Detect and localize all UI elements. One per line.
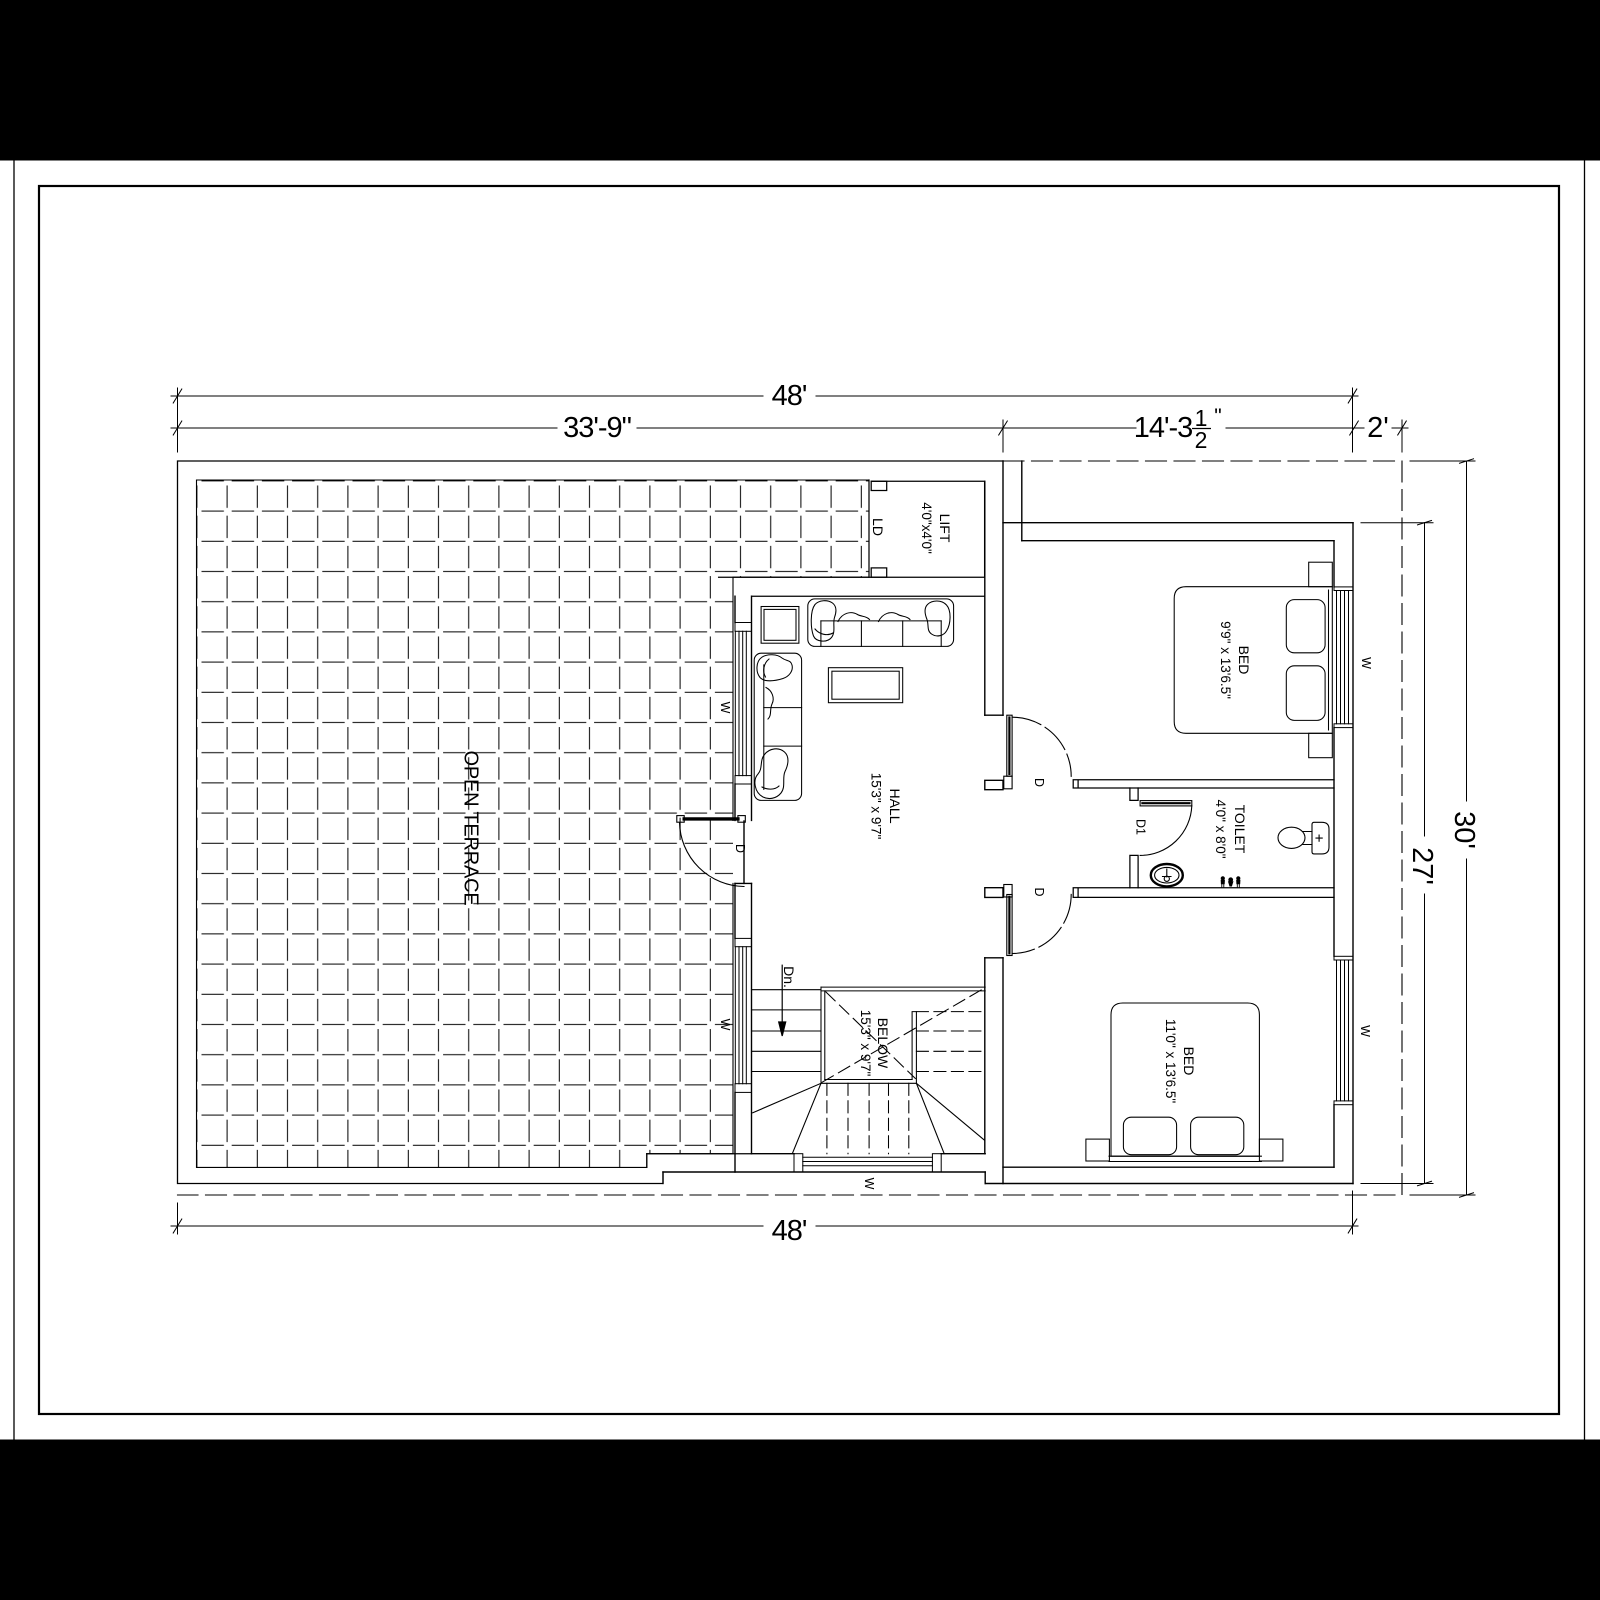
svg-text:OPEN TERRACE: OPEN TERRACE <box>460 750 482 905</box>
svg-text:11'0" x 13'6.5": 11'0" x 13'6.5" <box>1163 1019 1178 1104</box>
svg-text:TOILET: TOILET <box>1232 805 1248 854</box>
svg-text:27': 27' <box>1406 847 1438 885</box>
svg-text:48': 48' <box>772 380 807 412</box>
svg-text:D: D <box>733 844 747 853</box>
svg-text:14'-3: 14'-3 <box>1134 412 1193 444</box>
svg-text:W: W <box>1358 1025 1372 1037</box>
svg-text:48': 48' <box>772 1215 807 1247</box>
svg-text:LIFT: LIFT <box>937 514 953 543</box>
svg-text:W: W <box>718 1019 732 1031</box>
svg-text:15'3" x 9'7": 15'3" x 9'7" <box>858 1010 873 1077</box>
svg-text:BELOW: BELOW <box>875 1018 891 1069</box>
svg-text:4'0" x 8'0": 4'0" x 8'0" <box>1213 799 1228 858</box>
svg-text:33'-9": 33'-9" <box>563 412 632 444</box>
svg-text:": " <box>1214 405 1221 428</box>
svg-text:W: W <box>1359 657 1373 669</box>
svg-text:2: 2 <box>1195 427 1208 453</box>
svg-text:4'0"x4'0": 4'0"x4'0" <box>919 502 934 554</box>
svg-text:BED: BED <box>1181 1047 1197 1076</box>
svg-text:D: D <box>1032 887 1046 896</box>
svg-text:BED: BED <box>1236 646 1252 675</box>
svg-text:Dn.: Dn. <box>781 966 797 988</box>
svg-text:2': 2' <box>1367 412 1389 444</box>
svg-text:30': 30' <box>1448 811 1480 849</box>
svg-text:W: W <box>862 1178 876 1190</box>
svg-text:9'9" x 13'6.5": 9'9" x 13'6.5" <box>1218 621 1233 699</box>
svg-text:D1: D1 <box>1134 819 1148 835</box>
svg-text:HALL: HALL <box>887 788 903 823</box>
svg-text:W: W <box>718 702 732 714</box>
svg-text:D: D <box>1032 778 1046 787</box>
svg-text:LD: LD <box>870 518 886 536</box>
svg-text:15'3" x 9'7": 15'3" x 9'7" <box>869 773 884 840</box>
